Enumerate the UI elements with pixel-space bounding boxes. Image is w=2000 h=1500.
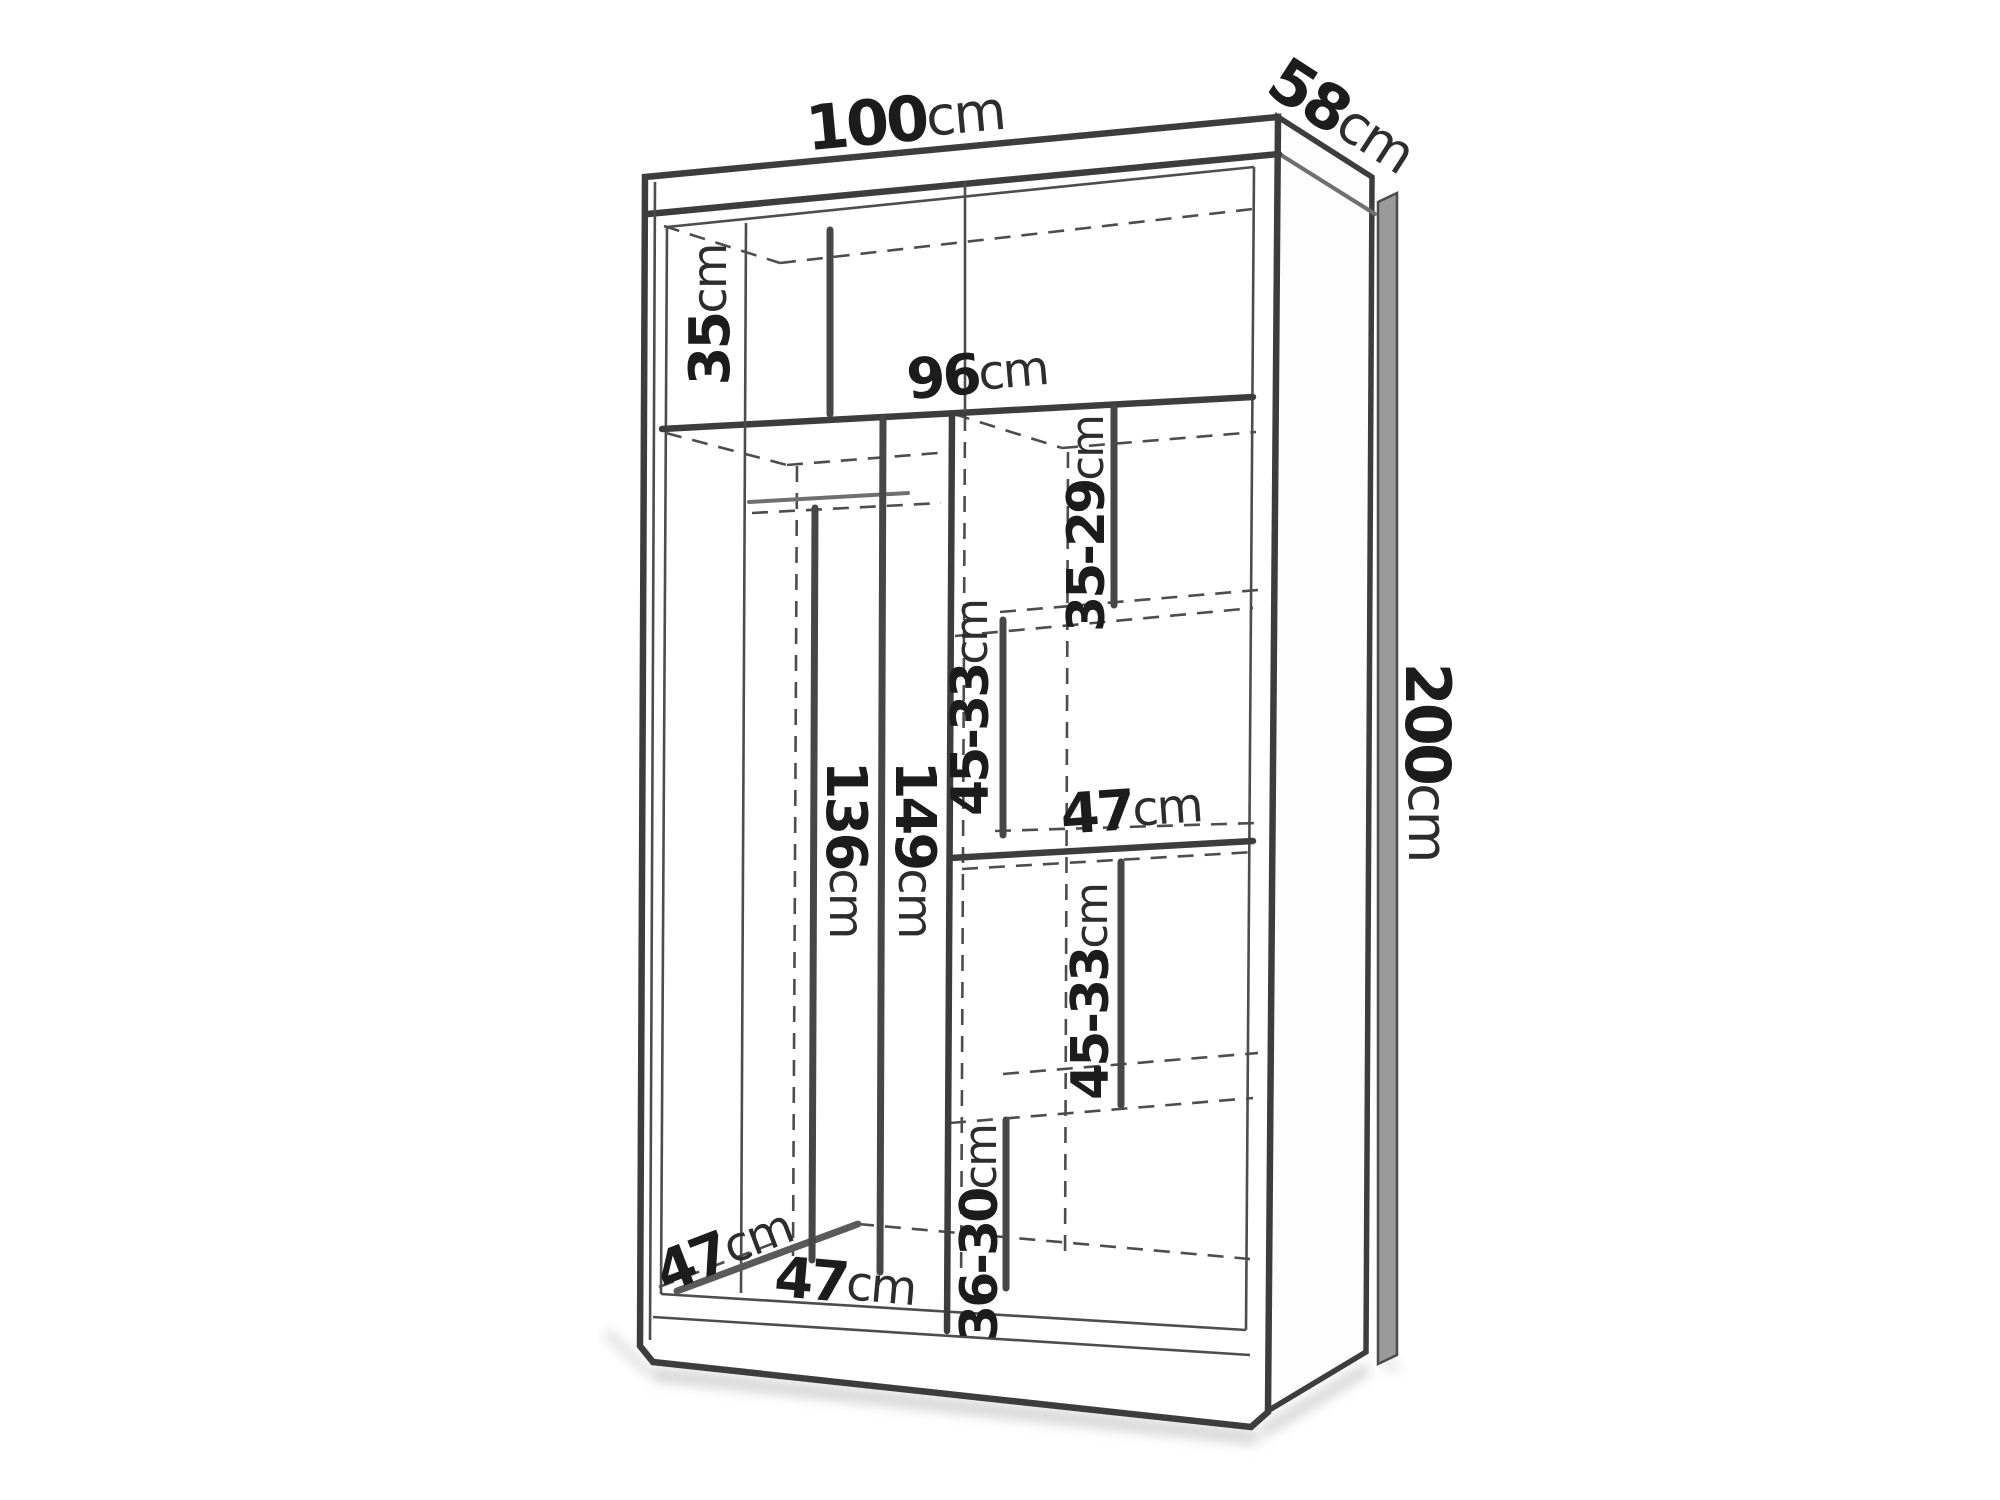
label-overall-height: 200cm bbox=[1392, 663, 1465, 862]
label-right-upper-gap: 45-33cm bbox=[941, 600, 1001, 816]
wardrobe-diagram-canvas: 100cm 58cm 200cm 96cm 35cm 35-29cm 45-33… bbox=[0, 0, 2000, 1500]
label-left-compartment-height: 149cm bbox=[883, 760, 948, 937]
label-hanging-space-height: 136cm bbox=[814, 760, 879, 937]
wardrobe-diagram: 100cm 58cm 200cm 96cm 35cm 35-29cm 45-33… bbox=[0, 0, 2000, 1500]
label-right-bottom-gap: 36-30cm bbox=[950, 1125, 1010, 1341]
label-right-lower-gap: 45-33cm bbox=[1061, 884, 1121, 1100]
side-face bbox=[1266, 117, 1372, 1412]
dim-line-hanging-height bbox=[812, 508, 815, 1260]
label-top-compartment-height: 35cm bbox=[678, 244, 743, 385]
label-right-top-gap: 35-29cm bbox=[1057, 416, 1117, 632]
